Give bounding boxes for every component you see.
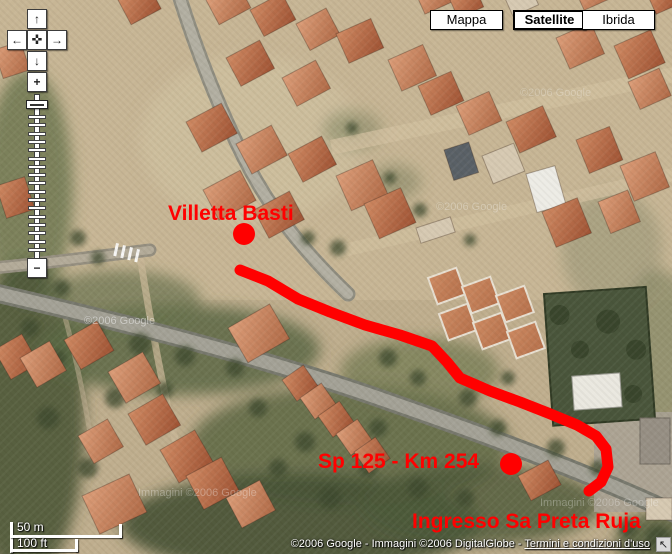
scale-bar-metric-tick: [119, 524, 122, 538]
map-type-button-ibrida[interactable]: Ibrida: [582, 10, 655, 30]
attribution: ©2006 Google - Immagini ©2006 DigitalGlo…: [291, 538, 650, 551]
right-arrow-icon: →: [51, 31, 63, 49]
scale-imperial-label: 100 ft: [17, 537, 47, 549]
zoom-tick: [28, 140, 46, 144]
zoom-tick: [28, 173, 46, 177]
scale-bar-imperial-rule: [10, 549, 78, 552]
pan-left-button[interactable]: ←: [7, 30, 27, 50]
zoom-tick: [28, 198, 46, 202]
scale-metric-label: 50 m: [17, 521, 44, 533]
zoom-in-button[interactable]: +: [27, 72, 47, 92]
zoom-tick: [28, 248, 46, 252]
zoom-tick: [28, 206, 46, 210]
pan-down-button[interactable]: ↓: [27, 51, 47, 71]
zoom-tick: [28, 190, 46, 194]
zoom-tick: [28, 240, 46, 244]
zoom-tick: [28, 165, 46, 169]
zoom-tick: [28, 115, 46, 119]
attribution-text: ©2006 Google - Immagini ©2006 DigitalGlo…: [291, 538, 525, 550]
scale-bar: 50 m 100 ft: [10, 519, 130, 554]
center-crosshair-icon: ✜: [32, 31, 43, 49]
zoom-tick: [28, 223, 46, 227]
terms-link[interactable]: Termini e condizioni d'uso: [524, 538, 650, 550]
zoom-slider-handle[interactable]: [26, 100, 48, 109]
minus-icon: −: [33, 259, 40, 277]
satellite-imagery[interactable]: [0, 0, 672, 554]
map-viewport: Villetta BastiSp 125 - Km 254Ingresso Sa…: [0, 0, 672, 554]
map-type-button-mappa[interactable]: Mappa: [430, 10, 503, 30]
zoom-tick: [28, 132, 46, 136]
down-arrow-icon: ↓: [34, 52, 40, 70]
mouse-cursor-icon: ↖: [656, 537, 671, 552]
left-arrow-icon: ←: [11, 31, 23, 49]
zoom-tick: [28, 123, 46, 127]
scale-bar-imperial-tick: [75, 539, 78, 552]
plus-icon: +: [33, 73, 40, 91]
zoom-tick: [28, 148, 46, 152]
map-type-button-satellite[interactable]: Satellite: [513, 10, 586, 30]
pan-up-button[interactable]: ↑: [27, 9, 47, 29]
zoom-out-button[interactable]: −: [27, 258, 47, 278]
zoom-tick: [28, 157, 46, 161]
up-arrow-icon: ↑: [34, 10, 40, 28]
recenter-button[interactable]: ✜: [27, 30, 47, 50]
zoom-tick: [28, 215, 46, 219]
zoom-tick: [28, 181, 46, 185]
pan-right-button[interactable]: →: [47, 30, 67, 50]
zoom-tick: [28, 231, 46, 235]
